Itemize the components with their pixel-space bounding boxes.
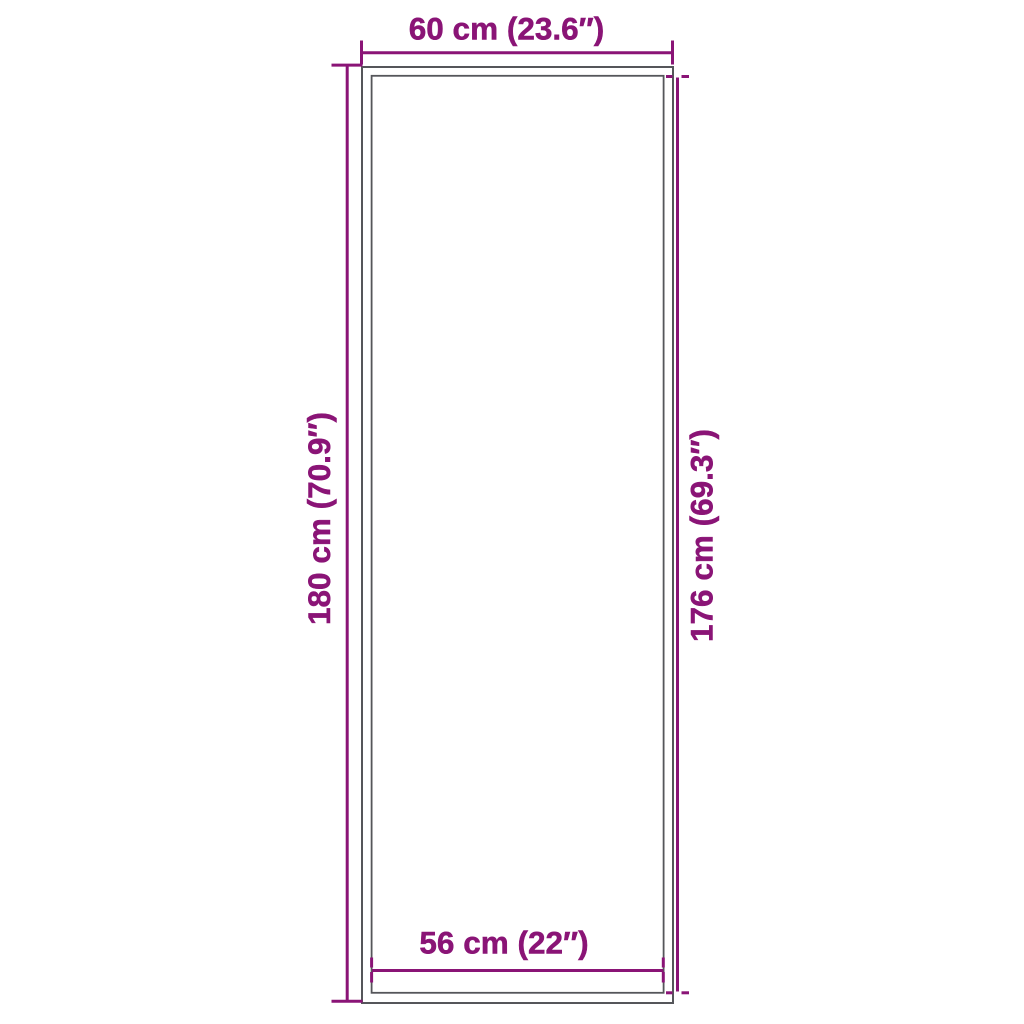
svg-text:176 cm (69.3″): 176 cm (69.3″) xyxy=(684,429,720,642)
svg-text:60 cm (23.6″): 60 cm (23.6″) xyxy=(409,11,604,47)
svg-text:56 cm (22″): 56 cm (22″) xyxy=(419,925,588,961)
svg-text:180 cm (70.9″): 180 cm (70.9″) xyxy=(301,412,337,625)
